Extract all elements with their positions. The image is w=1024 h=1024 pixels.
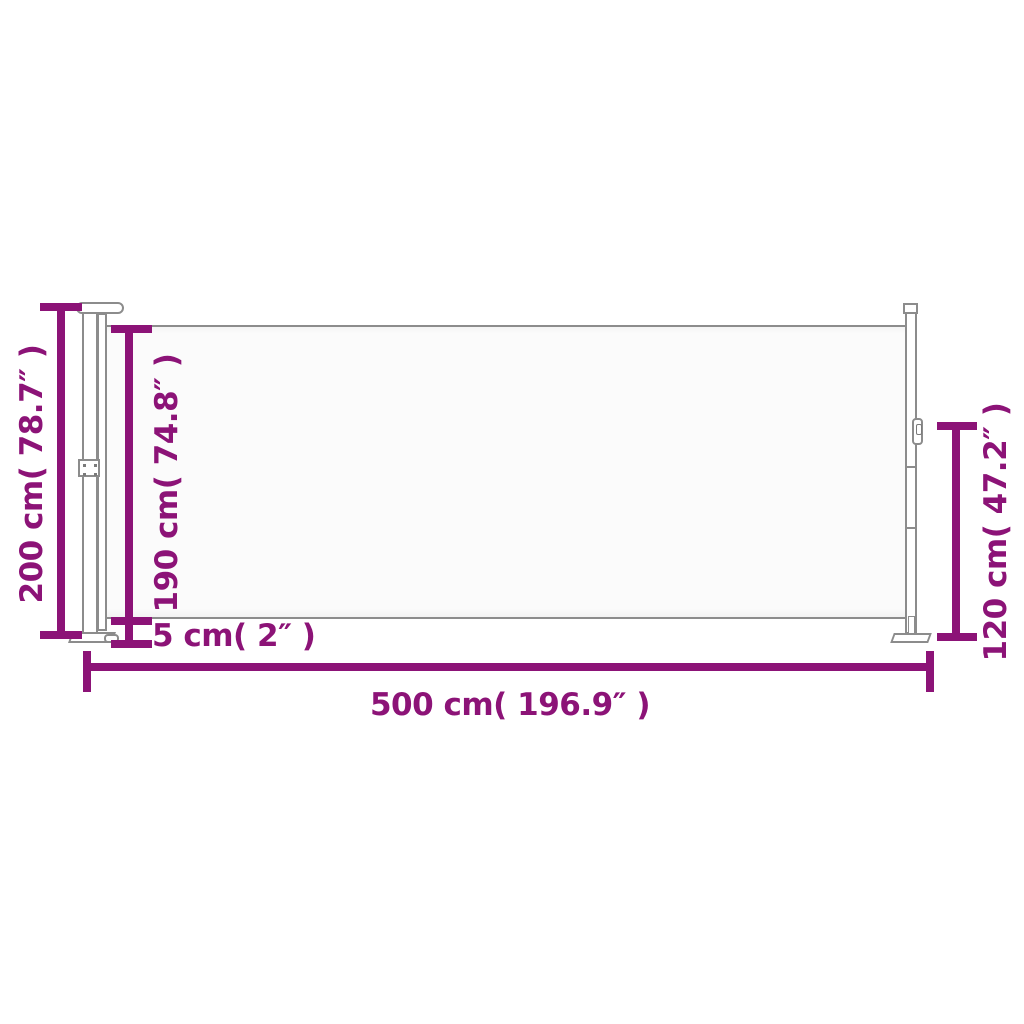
dim-bottom-gap-tick-bottom [111, 640, 152, 648]
right-post-foot [890, 633, 932, 643]
right-post-seam [906, 466, 916, 468]
awning-dimension-diagram: 200 cm( 78.7″ ) 190 cm( 74.8″ ) 5 cm( 2″… [0, 0, 1024, 1024]
right-post-seam [906, 527, 916, 529]
dim-bottom-gap-label: 5 cm( 2″ ) [152, 617, 315, 655]
dim-end-post-height-tick-bottom [937, 633, 977, 641]
dim-fabric-height-line [125, 326, 133, 648]
dim-total-width-tick-left [83, 651, 91, 692]
dim-end-post-height-tick-top [937, 422, 977, 430]
dim-overall-height-label: 200 cm( 78.7″ ) [13, 274, 51, 674]
right-post-notch [908, 616, 915, 634]
dim-fabric-height-tick-middle [111, 617, 152, 625]
dim-end-post-height-line [952, 426, 960, 640]
dim-total-width-label: 500 cm( 196.9″ ) [310, 686, 710, 724]
dim-total-width-tick-right [926, 651, 934, 692]
left-post-wall-bracket [78, 459, 100, 477]
dim-end-post-height-label: 120 cm( 47.2″ ) [977, 332, 1015, 732]
dim-total-width-line [87, 663, 934, 671]
dim-overall-height-line [57, 305, 65, 639]
dim-fabric-height-tick-top [111, 325, 152, 333]
right-post-body [905, 312, 917, 634]
right-post-handle [912, 418, 923, 445]
awning-fabric-panel [104, 325, 907, 619]
